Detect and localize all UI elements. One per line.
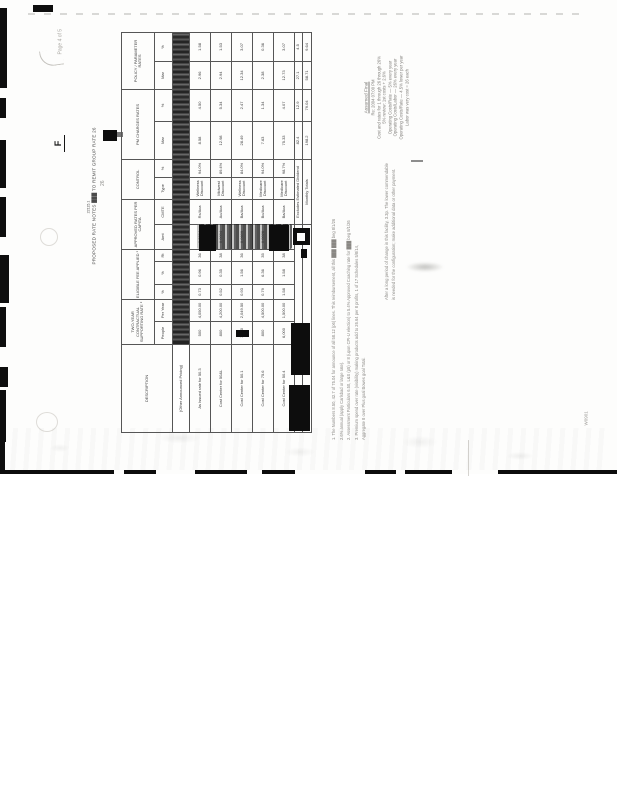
col-header-description: DESCRIPTION — [122, 345, 173, 433]
totals-label: Monthly Totals — [303, 159, 312, 224]
row-value-cell: 1.58 — [274, 262, 295, 285]
row-value-cell: Wellness Discount — [190, 177, 211, 199]
subcol-rt: Rt — [155, 249, 173, 261]
row-value-cell: 8.58 — [190, 121, 211, 159]
row-value-cell: 1.56 — [232, 262, 253, 285]
row-value-cell: 4,050.00 — [190, 300, 211, 322]
row-value-cell: 38 — [211, 249, 232, 261]
footnote-line: Aggregate 8 over Plus goal Bowes goal To… — [360, 160, 368, 440]
row-value-cell: Wellness Discount — [232, 177, 253, 199]
subcol-type: Type — [155, 177, 173, 199]
rates-table-container: DESCRIPTION TWO-YEAR CONTRACTUAL SUPPORT… — [121, 33, 313, 433]
row-value-cell: 2,049.50 — [232, 300, 253, 322]
row-value-cell: 1.58 — [190, 32, 211, 61]
pen-dash-mark — [411, 160, 423, 162]
table-header: DESCRIPTION TWO-YEAR CONTRACTUAL SUPPORT… — [122, 32, 173, 432]
row-value-cell: Ao/Aca — [211, 199, 232, 224]
scan-artifact-edge-bar — [0, 140, 6, 188]
totals-value: 12.9 — [295, 89, 303, 121]
row-value-cell: 500 — [190, 322, 211, 345]
ink-hook-hole — [297, 233, 305, 241]
page-number: Page 4 of 5 — [58, 28, 68, 55]
ink-blob — [301, 249, 307, 258]
bates-number: W0901 — [584, 402, 593, 426]
row-value-cell: 800 — [253, 322, 274, 345]
col-header-two-year: TWO-YEAR CONTRACTUAL SUPPORTING RATE ² — [122, 300, 155, 345]
scan-artifact-dotted-line — [28, 13, 586, 15]
lower-note-block: After a long period of change in this fa… — [383, 185, 400, 300]
row-value-cell: 3.07 — [232, 32, 253, 61]
subcol-pct-b: % — [155, 262, 173, 285]
row-value-cell: Bo/Aca — [253, 199, 274, 224]
row-desc-cell: Cost Center for 75.6 — [253, 345, 274, 433]
row-value-cell: 12.98 — [211, 121, 232, 159]
group-header-row: DESCRIPTION TWO-YEAR CONTRACTUAL SUPPORT… — [122, 32, 155, 432]
ink-blob-stamp — [103, 130, 117, 141]
subcol-amt: Amt — [155, 224, 173, 249]
row-value-cell: 0.93 — [232, 285, 253, 300]
footnotes-block: 1. The Numbers 8.50, 42.7 of 75.04 for a… — [330, 160, 372, 440]
toner-stripe-row: (Other Announced Pricing) — [173, 32, 190, 432]
scan-bottom-edge — [365, 470, 396, 474]
scan-bottom-edge — [498, 470, 617, 474]
scan-artifact-top-bar — [33, 5, 53, 12]
scan-smudge — [406, 262, 444, 272]
scan-bottom-edge — [195, 470, 247, 474]
row-desc-cell: Cost Center for 50.1 — [232, 345, 253, 433]
row-value-cell: Medicare Discount — [274, 177, 295, 199]
col-header-policy-parameter: POLICY / PARAMETER RATES — [122, 32, 155, 89]
scan-artifact-edge-bar — [0, 255, 9, 303]
totals-value: 58.71 — [303, 61, 312, 89]
row-value-cell: 12.73 — [274, 61, 295, 89]
row-value-cell: Ba/Aca — [232, 199, 253, 224]
footnote-line: 2.6% annual (apply Carlsbad or large rat… — [338, 160, 346, 440]
scan-artifact-edge-bar — [0, 98, 6, 118]
row-value-cell: 1.53 — [211, 32, 232, 61]
row-value-cell: 28.49 — [232, 121, 253, 159]
row-value-cell: 4.07 — [274, 89, 295, 121]
scan-bottom-edge — [0, 470, 114, 474]
col-header-eligible-fee: ELIGIBLE FEE APPLIED ¹ — [122, 249, 155, 299]
col-header-control: CONTROL — [122, 159, 155, 199]
totals-value: 4.5 — [295, 32, 303, 61]
hole-punch-mark — [40, 228, 58, 246]
subcol-pm-mar: Mar — [155, 121, 173, 159]
redaction-block — [269, 225, 289, 251]
row-value-cell: 84.0% — [232, 159, 253, 177]
totals-value: 198.2 — [303, 121, 312, 159]
redaction-block — [289, 385, 310, 431]
row-value-cell: 3.07 — [274, 32, 295, 61]
row-desc-cell: As Issued rate for 50.3 — [190, 345, 211, 433]
row-value-cell: 2.96 — [190, 61, 211, 89]
redaction-block — [291, 323, 310, 375]
row-value-cell: 98.7% — [274, 159, 295, 177]
row-value-cell: 0.52 — [211, 285, 232, 300]
row-value-cell: 800 — [211, 322, 232, 345]
footnote-line: 1. The Numbers 8.50, 42.7 of 75.04 for a… — [330, 160, 338, 440]
row-value-cell: 4,500.00 — [253, 300, 274, 322]
row-value-cell: Rx/Aca — [190, 199, 211, 224]
row-value-cell: 94.0% — [190, 159, 211, 177]
totals-value: 79.04 — [303, 89, 312, 121]
row-value-cell: 4.50 — [190, 89, 211, 121]
document-title-block: 22115.1 PROPOSED RATE NOTES ███ TO REMIT… — [87, 150, 103, 265]
redaction-block — [199, 225, 216, 251]
row-value-cell: 36 — [232, 249, 253, 261]
row-value-cell: 6.36 — [253, 262, 274, 285]
scan-artifact-edge-bar — [0, 367, 8, 387]
row-value-cell: 1.34 — [253, 89, 274, 121]
scan-artifact-edge-bar — [0, 307, 6, 347]
totals-label: Excludes Estimated Dividend — [295, 159, 303, 224]
row-value-cell: 1.58 — [274, 285, 295, 300]
subcol-pol-pct: % — [155, 32, 173, 61]
scan-artifact-edge-bar — [0, 197, 6, 237]
note-line: After a long period of change in this fa… — [383, 185, 390, 300]
scan-artifact-edge-bar — [0, 8, 7, 88]
row-value-cell: 2.94 — [211, 61, 232, 89]
row-value-cell: 0.36 — [253, 32, 274, 61]
footnote-line: 3. Premium spend over rate (visibility) … — [353, 160, 361, 440]
scan-bottom-edge — [262, 470, 295, 474]
subcol-per-year: Per Year — [155, 300, 173, 322]
scan-bottom-edge — [124, 470, 156, 474]
row-value-cell: 4,200.00 — [211, 300, 232, 322]
row-value-cell: 0.79 — [253, 285, 274, 300]
row-value-cell: 94.0% — [253, 159, 274, 177]
row-value-cell: Ba/Aca — [274, 199, 295, 224]
row-value-cell: 2.47 — [232, 89, 253, 121]
row-value-cell: 0.35 — [211, 262, 232, 285]
row-desc-cell: Cost Center for 50&L — [211, 345, 232, 433]
row-value-cell: 35 — [253, 249, 274, 261]
ink-blob — [236, 330, 249, 337]
note-line: Operating Costs/Rate — 4.5% lower per ye… — [398, 38, 404, 158]
row-value-cell: 89.4% — [211, 159, 232, 177]
note-line: is needed for the configuration; make ad… — [390, 185, 397, 300]
scanned-document-page: Page 4 of 5 F 26 W0901 22115.1 PROPOSED … — [0, 0, 617, 800]
row-value-cell: 75.33 — [274, 121, 295, 159]
col-header-pm-charges: PM CHARGES RATES — [122, 89, 155, 159]
subcol-pm-pct: % — [155, 89, 173, 121]
scan-noise-band — [0, 428, 606, 470]
row-value-cell: 5.34 — [211, 89, 232, 121]
document-title: PROPOSED RATE NOTES ███ TO REMIT GROUP R… — [92, 150, 98, 265]
handwritten-f-mark: F — [54, 135, 65, 152]
subcol-pol-mar: Mar — [155, 61, 173, 89]
row-value-cell: 2.38 — [253, 61, 274, 89]
scan-bottom-edge — [405, 470, 452, 474]
row-value-cell: 38 — [274, 249, 295, 261]
subcol-cmte: CMTE — [155, 199, 173, 224]
row-value-cell: 12.34 — [232, 61, 253, 89]
totals-value: 9.64 — [303, 32, 312, 61]
subcol-people: People — [155, 322, 173, 345]
subcol-ctrl-pct: % — [155, 159, 173, 177]
footnote-line: 2. Assessment Particulars 6.50, L&S (p5)… — [345, 160, 353, 440]
subcol-pct-a: % — [155, 285, 173, 300]
assumed-final-notes: Assumed Final Re: 2004 07:00 PM Cost and… — [365, 38, 412, 158]
row-value-cell: 1,500.00 — [274, 300, 295, 322]
row-value-cell: Midwest Discount — [211, 177, 232, 199]
note-line: Labor was very cost = 26 each — [404, 38, 410, 158]
row-value-cell: Medicare Discount — [253, 177, 274, 199]
row-value-cell: 0.73 — [190, 285, 211, 300]
totals-value: 27.1 — [295, 61, 303, 89]
row-value-cell: 36 — [190, 249, 211, 261]
row-value-cell: 7.63 — [253, 121, 274, 159]
totals-value: 82.4 — [295, 121, 303, 159]
col-header-approved-rates: APPROVED RATES PER CAPITA — [122, 199, 155, 249]
row-value-cell: 0.96 — [190, 262, 211, 285]
toner-stripe — [173, 32, 190, 344]
stripe-row-label: (Other Announced Pricing) — [173, 345, 190, 433]
